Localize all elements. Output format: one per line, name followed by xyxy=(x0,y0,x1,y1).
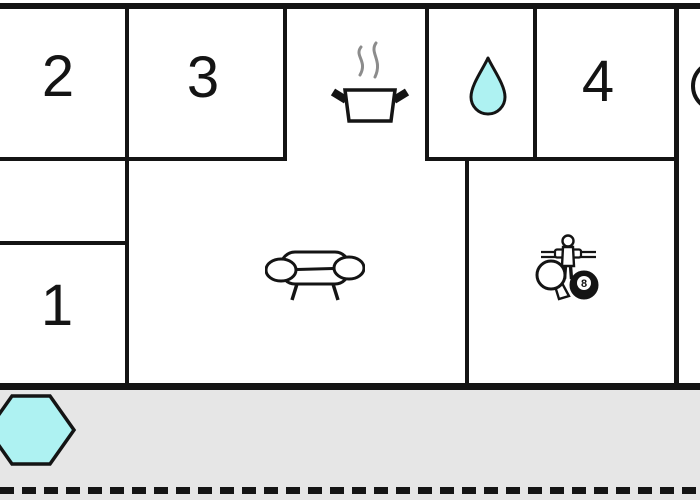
wall-vertical-kitchen-bathroom xyxy=(425,3,429,161)
room-label-2: 2 xyxy=(18,37,98,117)
partial-circle-icon xyxy=(689,58,700,118)
wall-horizontal-bath-game-bottom xyxy=(425,157,678,161)
eight-ball-number: 8 xyxy=(581,278,587,290)
foosball-player-torso xyxy=(562,247,574,266)
room-label-1: 1 xyxy=(17,266,97,346)
floorplan-canvas: 2 3 4 1 8 xyxy=(0,0,700,500)
terrace-dashed-boundary xyxy=(0,487,700,494)
steam-line-right xyxy=(374,43,378,77)
sofa-icon xyxy=(265,246,365,306)
sofa-leg-right xyxy=(333,284,338,300)
cooking-pot-icon xyxy=(330,40,410,124)
wall-horizontal-rooms23-bottom xyxy=(0,157,287,161)
foosball-player-leg-right xyxy=(571,266,572,279)
water-drop-icon xyxy=(466,55,510,117)
foosball-player-head xyxy=(563,236,574,247)
wall-horizontal-corridor-bottom xyxy=(0,241,129,245)
hot-tub-hexagon-shape xyxy=(0,396,74,464)
pot-body xyxy=(345,90,395,121)
steam-line-left xyxy=(359,47,363,75)
water-drop-shape xyxy=(471,58,505,114)
wall-vertical-room3-kitchen xyxy=(283,3,287,161)
sofa-armrest-right xyxy=(334,257,364,279)
wall-bottom-exterior xyxy=(0,383,700,390)
room-label-4: 4 xyxy=(558,42,638,122)
wall-vertical-bathroom-room4 xyxy=(533,3,537,161)
terrace-area xyxy=(0,390,700,500)
sofa-armrest-left xyxy=(266,259,296,281)
wall-vertical-gameroom-left xyxy=(465,157,469,390)
wall-vertical-right xyxy=(674,3,679,390)
hot-tub-hexagon-icon xyxy=(0,390,78,472)
sofa-leg-left xyxy=(292,284,297,300)
wall-top-exterior xyxy=(0,3,700,9)
partial-circle-shape xyxy=(693,62,700,110)
wall-vertical-left-center xyxy=(125,3,129,390)
pingpong-paddle-blade xyxy=(537,261,565,289)
game-room-icon: 8 xyxy=(530,233,610,305)
room-label-3: 3 xyxy=(163,38,243,118)
